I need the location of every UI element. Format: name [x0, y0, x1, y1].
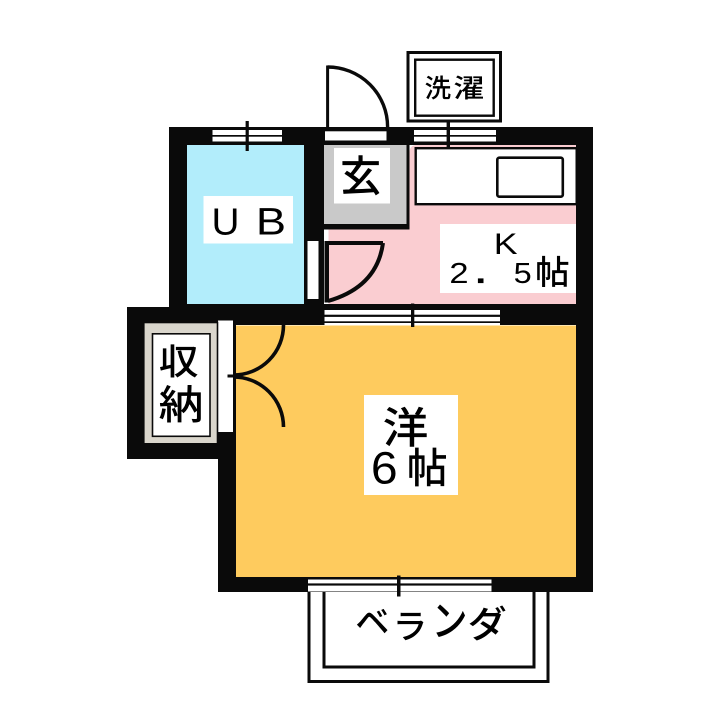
svg-text:2: 2 — [449, 257, 468, 290]
svg-text:U: U — [212, 201, 240, 244]
svg-text:K: K — [494, 227, 518, 261]
svg-text:5: 5 — [514, 257, 532, 290]
svg-text:B: B — [256, 200, 286, 243]
svg-text:6: 6 — [371, 443, 398, 493]
